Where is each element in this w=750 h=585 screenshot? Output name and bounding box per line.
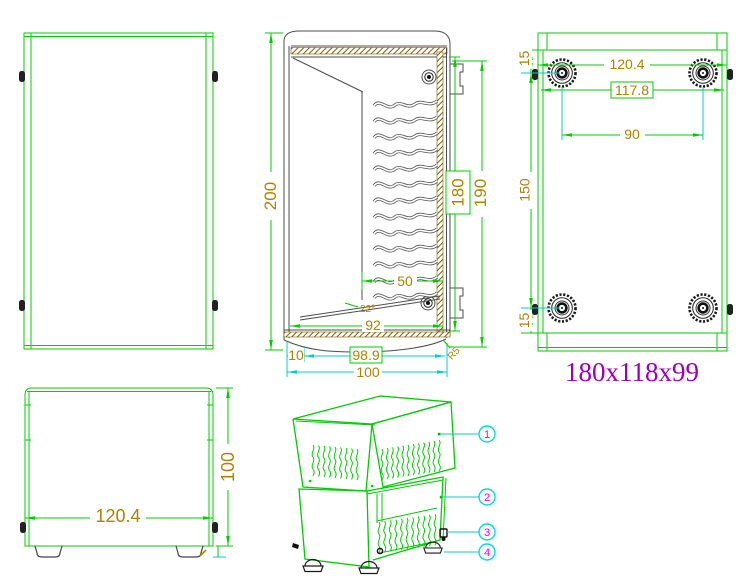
balloon-1: 1: [438, 426, 495, 442]
radius-label-r5: R5: [446, 345, 463, 362]
dim-label-150: 150: [517, 178, 533, 202]
dim-label-90: 90: [624, 126, 640, 142]
dim-label-15-bottom: 15: [516, 313, 532, 329]
dim-150: 150: [517, 73, 534, 308]
dim-50: 50: [362, 272, 443, 290]
dim-label-92: 92: [365, 317, 381, 333]
cad-drawing-sheet: 200 190 180 50 22° 92: [0, 0, 750, 585]
balloon-1-label: 1: [484, 429, 490, 441]
thumb-screw-icon: [421, 70, 436, 310]
dim-label-190: 190: [471, 179, 490, 207]
dim-label-50: 50: [397, 273, 413, 289]
vent-slots: [374, 101, 437, 299]
dim-200: 200: [261, 33, 283, 350]
vent-slots-left: [312, 445, 358, 480]
dim-label-200: 200: [261, 182, 280, 210]
balloon-3: 3: [447, 524, 495, 540]
balloon-3-label: 3: [484, 527, 490, 539]
dim-label-100-front: 100: [218, 452, 238, 482]
balloon-2: 2: [440, 489, 495, 505]
dim-98-9: 98.9: [304, 347, 445, 363]
dim-foot-height: [200, 546, 226, 557]
section-view: 200 190 180 50 22° 92: [261, 31, 490, 380]
drawing-svg: 200 190 180 50 22° 92: [0, 0, 750, 585]
dim-label-117-8: 117.8: [615, 82, 649, 98]
dim-120-4-front: 120.4: [25, 506, 213, 526]
side-screw-icon: [19, 71, 218, 311]
dim-label-180: 180: [449, 178, 468, 206]
right-hatch-strip: [437, 52, 443, 332]
foot-detail: [549, 60, 717, 322]
balloon-4-label: 4: [484, 547, 490, 559]
isometric-view: 1 2 3 4: [292, 396, 495, 574]
angle-label-22: 22°: [360, 304, 375, 315]
size-label: 180x118x99: [565, 357, 699, 387]
dim-92: 92: [290, 317, 443, 333]
front-view: 120.4 100: [20, 388, 238, 557]
balloon-4: 4: [444, 544, 495, 560]
dim-100-front: 100: [216, 388, 238, 546]
dim-label-10: 10: [288, 347, 304, 363]
dim-label-120-4-front: 120.4: [95, 506, 140, 526]
latch-detail: [450, 64, 463, 94]
dim-label-15-top: 15: [516, 51, 532, 67]
foot-detail: [35, 546, 203, 557]
dim-r5: R5: [443, 340, 463, 362]
dim-angle-22: 22°: [345, 303, 375, 315]
side-panel-view: [19, 33, 218, 349]
dim-label-98-9: 98.9: [352, 347, 379, 363]
top-hatch-strip: [291, 48, 447, 55]
latch-detail: [450, 288, 463, 318]
bottom-view: 15 120.4 117.8 90 150: [516, 33, 733, 351]
iso-feet: [303, 542, 442, 573]
dim-label-100: 100: [356, 364, 380, 380]
balloon-2-label: 2: [484, 492, 490, 504]
dim-label-120-4: 120.4: [609, 56, 644, 72]
